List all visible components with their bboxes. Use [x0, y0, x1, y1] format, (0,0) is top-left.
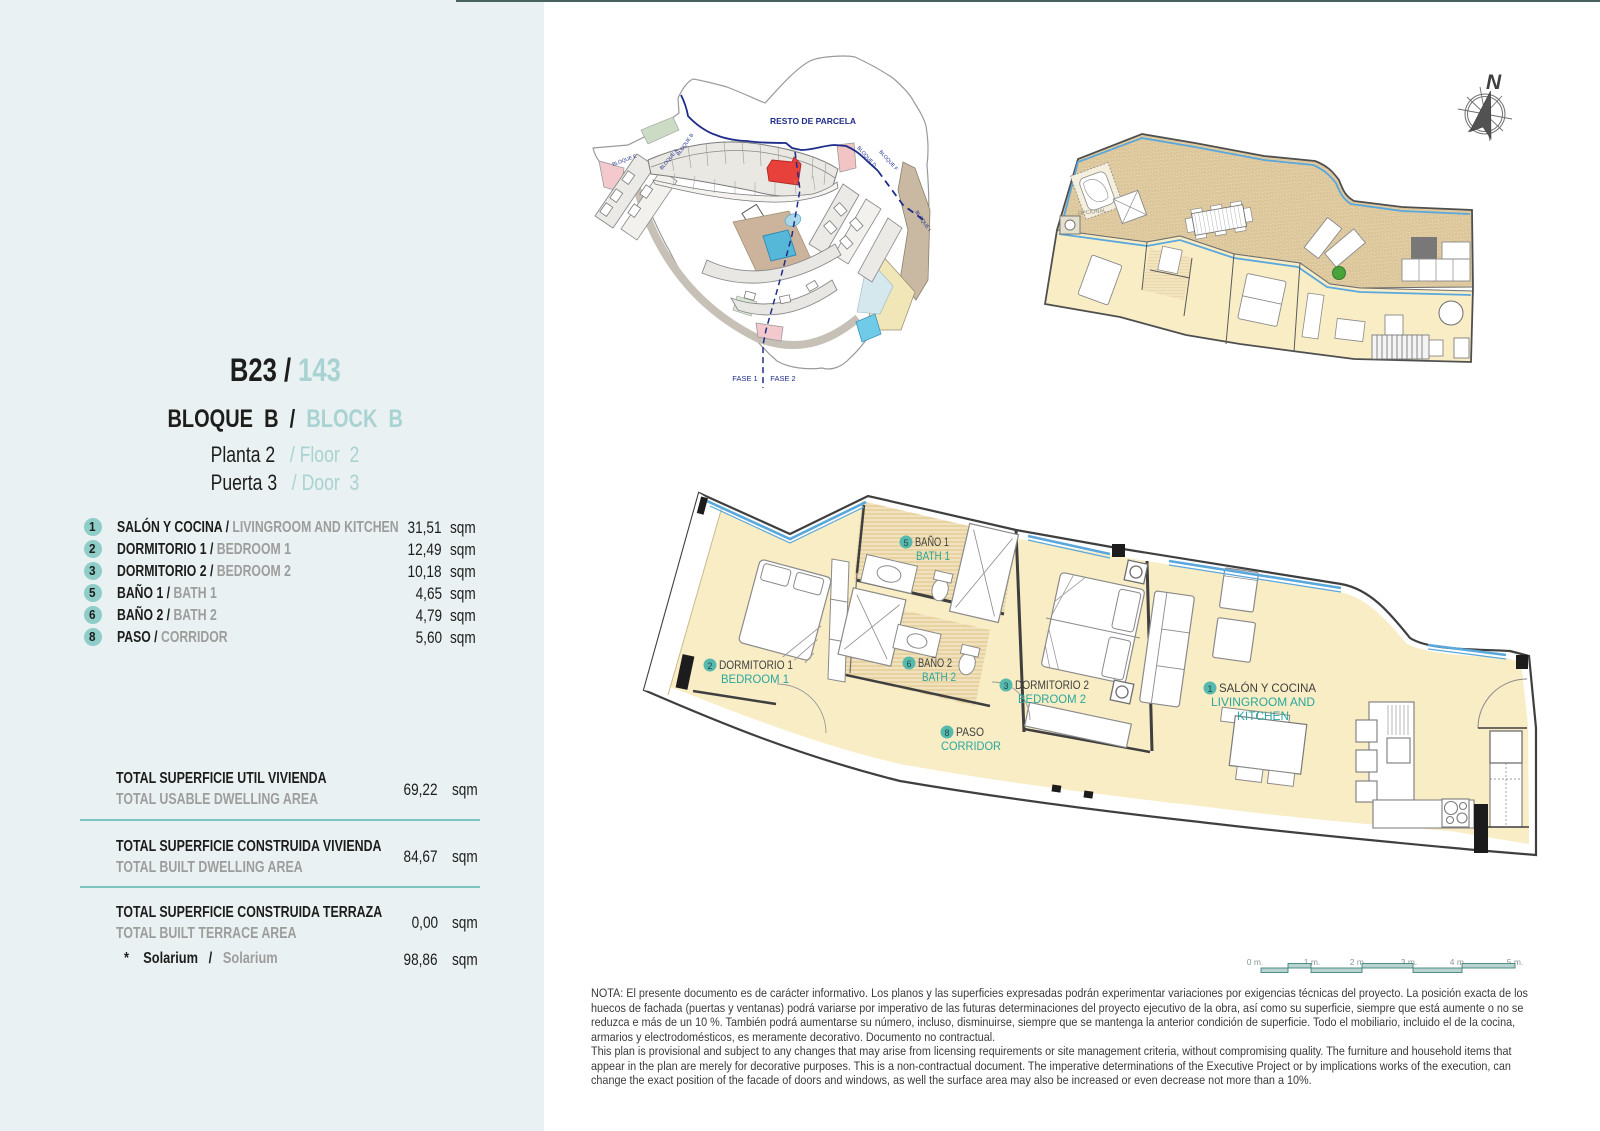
svg-text:8: 8 [944, 728, 949, 738]
svg-text:DORMITORIO 1: DORMITORIO 1 [719, 658, 793, 672]
svg-text:BEDROOM 1: BEDROOM 1 [721, 672, 789, 686]
svg-text:0 m.: 0 m. [1247, 957, 1264, 967]
svg-text:BAÑO 1: BAÑO 1 [915, 535, 949, 549]
svg-text:DORMITORIO 2: DORMITORIO 2 [1015, 678, 1089, 692]
svg-text:BAÑO 2: BAÑO 2 [918, 656, 952, 670]
svg-text:5: 5 [903, 538, 908, 548]
svg-text:SALÓN Y COCINA: SALÓN Y COCINA [1219, 680, 1316, 695]
svg-text:KITCHEN: KITCHEN [1237, 709, 1289, 723]
svg-text:1: 1 [1207, 684, 1212, 694]
svg-text:FASE 2: FASE 2 [770, 374, 795, 383]
svg-text:RESTO DE PARCELA: RESTO DE PARCELA [770, 116, 856, 126]
svg-text:BEDROOM 2: BEDROOM 2 [1018, 692, 1086, 706]
svg-text:6: 6 [906, 659, 911, 669]
svg-text:3: 3 [1003, 681, 1008, 691]
svg-text:BATH 2: BATH 2 [922, 670, 956, 684]
svg-text:CORRIDOR: CORRIDOR [941, 739, 1001, 753]
svg-text:BATH 1: BATH 1 [916, 549, 950, 563]
svg-text:FASE 1: FASE 1 [732, 374, 757, 383]
svg-text:PASO: PASO [956, 725, 984, 739]
svg-text:LIVINGROOM AND: LIVINGROOM AND [1211, 695, 1315, 709]
svg-text:2: 2 [707, 661, 712, 671]
svg-text:N: N [1486, 71, 1502, 94]
